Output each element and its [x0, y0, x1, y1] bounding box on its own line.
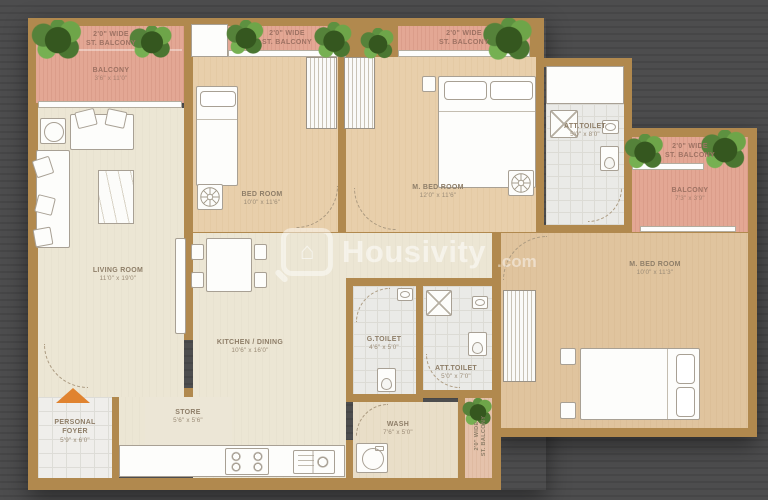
st-balcony-5-line2: ST. BALCONY	[481, 401, 488, 471]
watermark-brand: Housivity	[342, 234, 486, 270]
m-bed-room-1-name: M. BED ROOM	[378, 183, 498, 192]
house-magnifier-icon: ⌂	[281, 228, 333, 276]
balcony-left-name: BALCONY	[61, 66, 161, 75]
wall-atoilet2-bottom	[416, 390, 501, 398]
store-dims: 5'6" x 5'6"	[148, 417, 228, 426]
pillow	[490, 81, 533, 100]
wardrobe-bedroom	[306, 57, 337, 129]
att-toilet-1-name: ATT.TOILET	[547, 122, 623, 131]
bed-fold	[667, 349, 668, 419]
label-balcony-left: BALCONY 3'6" x 11'0"	[61, 66, 161, 84]
floor-plan-canvas: 2'0" WIDE ST. BALCONY BALCONY 3'6" x 11'…	[0, 0, 768, 500]
label-st-balcony-5: 2'0" WIDE ST. BALCONY	[474, 401, 490, 471]
wardrobe-mbed2	[503, 290, 536, 382]
att-toilet-1-dims: 5'0" x 8'0"	[547, 131, 623, 140]
pillow	[200, 91, 236, 107]
label-balcony-east: BALCONY 7'3" x 3'9"	[640, 186, 740, 204]
st-balcony-1-line2: ST. BALCONY	[61, 39, 161, 48]
bed-bedroom	[196, 86, 238, 186]
tv-unit	[175, 238, 186, 334]
bed-fold	[197, 119, 237, 120]
wall-mbed1-right	[536, 18, 544, 233]
st-balcony-2-line2: ST. BALCONY	[237, 38, 337, 47]
duct-shaft-2	[546, 66, 624, 104]
label-att-toilet-2: ATT.TOILET 5'0" x 7'0"	[420, 364, 492, 382]
label-st-balcony-4: 2'0" WIDE ST. BALCONY	[640, 142, 740, 161]
pillow	[444, 81, 487, 100]
label-att-toilet-1: ATT.TOILET 5'0" x 8'0"	[547, 122, 623, 140]
st-balcony-1-line1: 2'0" WIDE	[61, 30, 161, 39]
duct-shaft-1	[191, 24, 228, 57]
balcony-east-name: BALCONY	[640, 186, 740, 195]
wardrobe-mbed1	[344, 57, 375, 129]
st-balcony-4-line1: 2'0" WIDE	[640, 142, 740, 151]
bed-room-name: BED ROOM	[202, 190, 322, 199]
st-balcony-4-line2: ST. BALCONY	[640, 151, 740, 160]
shower-area	[426, 290, 452, 316]
label-m-bed-room-2: M. BED ROOM 10'0" x 11'3"	[595, 260, 715, 278]
m-bed-room-2-dims: 10'0" x 11'3"	[595, 269, 715, 278]
wash-name: WASH	[358, 420, 438, 429]
balcony-left-dims: 3'6" x 11'0"	[61, 75, 161, 84]
wall-foyer-right	[112, 397, 119, 478]
dining-chair	[191, 272, 204, 288]
toilet-wc	[377, 368, 396, 392]
toilet-wc	[468, 332, 487, 356]
store-name: STORE	[148, 408, 228, 417]
label-kitchen: KITCHEN / DINING 10'6" x 16'0"	[180, 338, 320, 356]
washing-machine	[356, 443, 388, 473]
living-room-name: LIVING ROOM	[58, 266, 178, 275]
bed-room-dims: 10'0" x 11'6"	[202, 199, 322, 208]
dining-chair	[191, 244, 204, 260]
label-st-balcony-2: 2'0" WIDE ST. BALCONY	[237, 29, 337, 48]
m-bed-room-2-name: M. BED ROOM	[595, 260, 715, 269]
kitchen-sink	[293, 450, 335, 474]
room-corridor	[119, 397, 145, 445]
personal-foyer-dims: 5'9" x 6'0"	[41, 437, 109, 446]
st-balcony-3-line1: 2'0" WIDE	[414, 29, 514, 38]
gas-stove	[225, 448, 269, 475]
label-living-room: LIVING ROOM 11'0" x 19'0"	[58, 266, 178, 284]
label-personal-foyer: PERSONAL FOYER 5'9" x 6'0"	[41, 418, 109, 445]
nightstand	[560, 402, 576, 419]
wall-gtoilet-bottom	[346, 394, 423, 402]
washbasin	[397, 288, 413, 301]
label-st-balcony-1: 2'0" WIDE ST. BALCONY	[61, 30, 161, 49]
balcony-east-dims: 7'3" x 3'9"	[640, 195, 740, 204]
sofa-cushion	[33, 227, 54, 248]
nightstand	[560, 348, 576, 365]
wall-toilets-top	[346, 278, 501, 286]
kitchen-name: KITCHEN / DINING	[180, 338, 320, 347]
wall-mbed2-bottom	[492, 428, 757, 437]
wash-dims: 7'6" x 5'0"	[358, 429, 438, 438]
label-wash: WASH 7'6" x 5'0"	[358, 420, 438, 438]
att-toilet-2-dims: 5'0" x 7'0"	[420, 373, 492, 382]
personal-foyer-name: PERSONAL FOYER	[41, 418, 109, 437]
watermark: ⌂ Housivity .com	[281, 228, 537, 276]
label-m-bed-room-1: M. BED ROOM 12'0" x 11'6"	[378, 183, 498, 201]
dining-chair	[254, 272, 267, 288]
pillow	[676, 354, 695, 384]
living-room-dims: 11'0" x 19'0"	[58, 275, 178, 284]
g-toilet-dims: 4'6" x 5'0"	[352, 344, 416, 353]
dining-chair	[254, 244, 267, 260]
watermark-suffix: .com	[497, 252, 537, 276]
st-balcony-2-line1: 2'0" WIDE	[237, 29, 337, 38]
m-bed-room-1-dims: 12'0" x 11'6"	[378, 192, 498, 201]
att-toilet-2-name: ATT.TOILET	[420, 364, 492, 373]
wall-wash-left	[346, 440, 353, 478]
dining-table	[206, 238, 252, 292]
washbasin	[472, 296, 488, 309]
label-bed-room: BED ROOM 10'0" x 11'6"	[202, 190, 322, 208]
toilet-wc	[600, 146, 619, 171]
pillow	[676, 387, 695, 417]
label-st-balcony-3: 2'0" WIDE ST. BALCONY	[414, 29, 514, 48]
st-balcony-3-line2: ST. BALCONY	[414, 38, 514, 47]
entry-arrow-icon	[56, 388, 90, 403]
bed-fold	[439, 111, 535, 112]
plant-icon	[360, 28, 396, 62]
side-table	[40, 118, 66, 144]
bed-mbed2	[580, 348, 700, 420]
kitchen-dims: 10'6" x 16'0"	[180, 347, 320, 356]
ceiling-fan-icon	[508, 170, 534, 196]
st-balcony-5-line1: 2'0" WIDE	[474, 401, 481, 471]
label-g-toilet: G.TOILET 4'6" x 5'0"	[352, 335, 416, 353]
side-table-top	[44, 122, 64, 142]
window-balcony-left	[38, 101, 182, 108]
label-store: STORE 5'6" x 5'6"	[148, 408, 228, 426]
wall-bottom	[28, 478, 501, 490]
wall-right	[748, 128, 757, 437]
window-mbed2-balcony	[640, 226, 736, 232]
nightstand	[422, 76, 436, 92]
g-toilet-name: G.TOILET	[352, 335, 416, 344]
rug	[98, 170, 134, 224]
